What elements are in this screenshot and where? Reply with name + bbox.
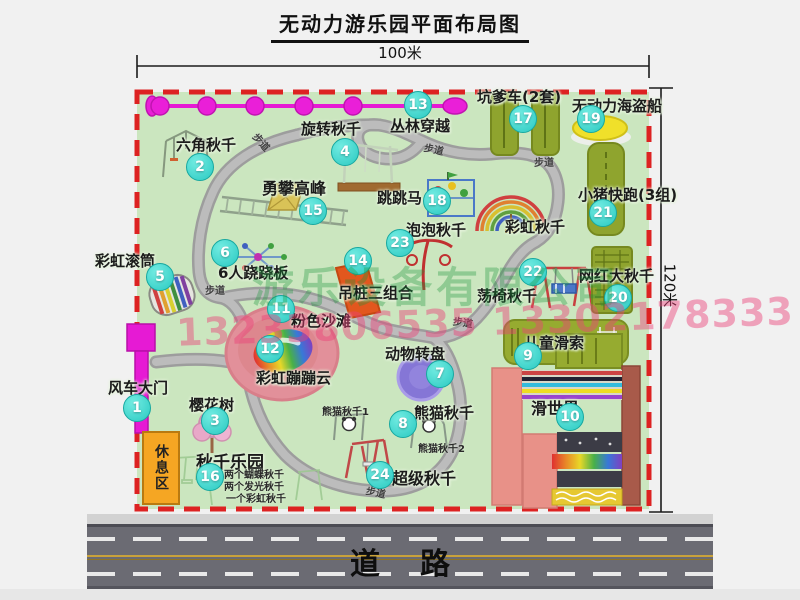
sublabel-8-1: 熊猫秋千1 <box>322 403 369 418</box>
label-18: 跳跳马 <box>377 187 422 208</box>
badge-16: 16 <box>196 463 224 491</box>
sublabel-8-2: 熊猫秋千2 <box>418 440 465 455</box>
extra-label-1: 彩虹秋千 <box>505 216 565 237</box>
badge-23: 23 <box>386 229 414 257</box>
badge-4: 4 <box>331 138 359 166</box>
page-title: 无动力游乐园平面布局图 <box>0 8 800 43</box>
badge-8: 8 <box>389 410 417 438</box>
badge-18: 18 <box>423 187 451 215</box>
label-2: 六角秋千 <box>176 134 236 155</box>
label-5: 彩虹滚筒 <box>95 250 155 271</box>
road-edge <box>0 589 800 600</box>
badge-3: 3 <box>201 407 229 435</box>
badge-6: 6 <box>211 239 239 267</box>
label-8: 熊猫秋千 <box>414 402 474 423</box>
label-23: 泡泡秋千 <box>406 219 466 240</box>
label-4: 旋转秋千 <box>301 118 361 139</box>
label-24: 超级秋千 <box>392 465 456 489</box>
badge-7: 7 <box>426 360 454 388</box>
badge-13: 13 <box>404 91 432 119</box>
rest-area: 休息区 <box>142 431 180 505</box>
road-label: 道路 <box>87 539 713 583</box>
badge-17: 17 <box>509 105 537 133</box>
dimension-width-label: 100米 <box>355 42 445 63</box>
badge-9: 9 <box>514 342 542 370</box>
badge-24: 24 <box>366 461 394 489</box>
rest-area-label: 休息区 <box>151 444 171 492</box>
badge-1: 1 <box>123 394 151 422</box>
label-15: 勇攀高峰 <box>262 175 326 199</box>
badge-2: 2 <box>186 153 214 181</box>
walkway-label-4: 步道 <box>205 282 225 297</box>
badge-10: 10 <box>556 403 584 431</box>
road: 道路 <box>87 524 713 589</box>
road-shoulder <box>87 514 713 524</box>
sublabel-16-3: 一个彩虹秋千 <box>226 490 286 505</box>
walkway-label-3: 步道 <box>534 154 554 169</box>
badge-15: 15 <box>299 197 327 225</box>
badge-19: 19 <box>577 105 605 133</box>
label-12: 彩虹蹦蹦云 <box>256 367 331 388</box>
badge-21: 21 <box>589 199 617 227</box>
badge-5: 5 <box>146 263 174 291</box>
label-17: 坑爹车(2套) <box>477 86 561 107</box>
